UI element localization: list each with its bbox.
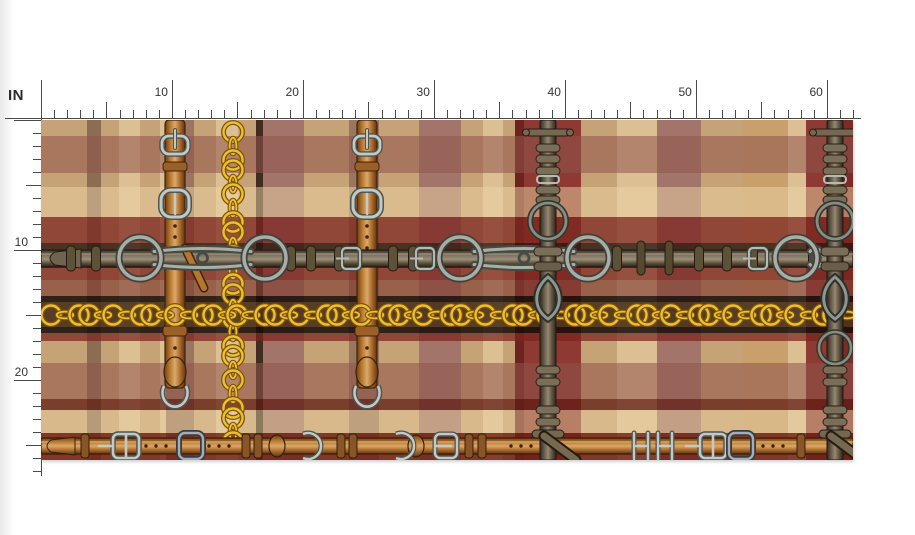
ruler-tick [512,110,513,118]
ruler-tick [630,102,631,118]
ruler-unit-label: IN [8,87,24,104]
ruler-tick [303,80,304,118]
ruler-tick [33,263,41,264]
ruler-tick [368,102,369,118]
ruler-tick [14,380,41,381]
ruler-tick [761,102,762,118]
ruler-tick [33,133,41,134]
ruler-tick [159,110,160,118]
ruler-tick [696,80,697,118]
ruler-tick [355,110,356,118]
ruler-tick [643,110,644,118]
ruler-tick [552,110,553,118]
ruler-tick [709,110,710,118]
ruler-tick [316,110,317,118]
ruler-tick [578,110,579,118]
ruler-tick [33,302,41,303]
ruler-tick [33,224,41,225]
ruler-tick [224,110,225,118]
ruler-tick-label: 30 [394,85,430,99]
ruler-tick [526,110,527,118]
ruler-tick [486,110,487,118]
ruler-tick [237,102,238,118]
ruler-tick [421,110,422,118]
horizontal-bit-belt [41,237,853,288]
ruler-tick [33,419,41,420]
ruler-tick [342,110,343,118]
ruler-tick [146,110,147,118]
ruler-tick [185,110,186,118]
ruler-tick [33,237,41,238]
ruler-tick [473,110,474,118]
fabric-preview-page: IN 102030405060 1020 [0,0,915,535]
ruler-tick [26,185,41,186]
ruler-tick [604,110,605,118]
ruler-tick [93,110,94,118]
ruler-tick [54,110,55,118]
ruler-tick [591,110,592,118]
ruler-tick [617,110,618,118]
ruler-tick [26,315,41,316]
ruler-tick-label: 20 [263,85,299,99]
ruler-tick [264,110,265,118]
ruler-tick-label: 40 [525,85,561,99]
ruler-tick [853,110,854,118]
ruler-tick [840,110,841,118]
ruler-tick [33,406,41,407]
ruler-tick [33,289,41,290]
ruler-tick [33,211,41,212]
vertical-gold-chain [224,123,243,452]
ruler-tick [670,110,671,118]
fabric-hardware [41,120,853,460]
ruler-tick [33,393,41,394]
ruler-tick [33,328,41,329]
ruler-tick [774,110,775,118]
ruler-tick [33,276,41,277]
ruler-tick [33,172,41,173]
ruler-tick-label: 20 [2,365,28,379]
ruler-tick [447,110,448,118]
vertical-bit-straps [523,120,854,460]
horizontal-gold-chain [42,306,854,325]
ruler-tick [277,110,278,118]
ruler-tick [33,198,41,199]
ruler-tick [33,354,41,355]
ruler-tick [14,120,41,121]
ruler-tick [683,110,684,118]
ruler-tick [33,341,41,342]
ruler-tick [120,110,121,118]
fabric-preview[interactable] [41,120,853,460]
ruler-tick [26,445,41,446]
ruler-tick [814,110,815,118]
ruler-tick [172,80,173,118]
ruler-tick [133,110,134,118]
ruler-tick [33,471,41,472]
ruler-tick [33,367,41,368]
ruler-tick [329,110,330,118]
bottom-leather-belt [41,433,853,459]
window-edge-shading [0,0,13,535]
ruler-tick [290,110,291,118]
ruler-tick [499,102,500,118]
ruler-tick [748,110,749,118]
ruler-tick-label: 50 [656,85,692,99]
ruler-tick-label: 10 [2,235,28,249]
ruler-tick [211,110,212,118]
ruler-horizontal-baseline [5,118,861,119]
ruler-tick [408,110,409,118]
ruler-tick [14,250,41,251]
ruler-tick [33,159,41,160]
ruler-tick [33,146,41,147]
ruler-tick [657,110,658,118]
ruler-tick [434,80,435,118]
ruler-tick [33,432,41,433]
ruler-tick [460,110,461,118]
ruler-tick [382,110,383,118]
ruler-tick [801,110,802,118]
ruler-tick [722,110,723,118]
ruler-tick [198,110,199,118]
ruler-tick [67,110,68,118]
ruler-tick [106,102,107,118]
ruler-tick [395,110,396,118]
ruler-tick [735,110,736,118]
ruler-tick [251,110,252,118]
ruler-tick [33,458,41,459]
ruler-tick [788,110,789,118]
ruler-tick [565,80,566,118]
ruler-tick [539,110,540,118]
ruler-tick-label: 60 [787,85,823,99]
ruler-tick [827,80,828,118]
ruler-tick-label: 10 [132,85,168,99]
ruler-tick [80,110,81,118]
